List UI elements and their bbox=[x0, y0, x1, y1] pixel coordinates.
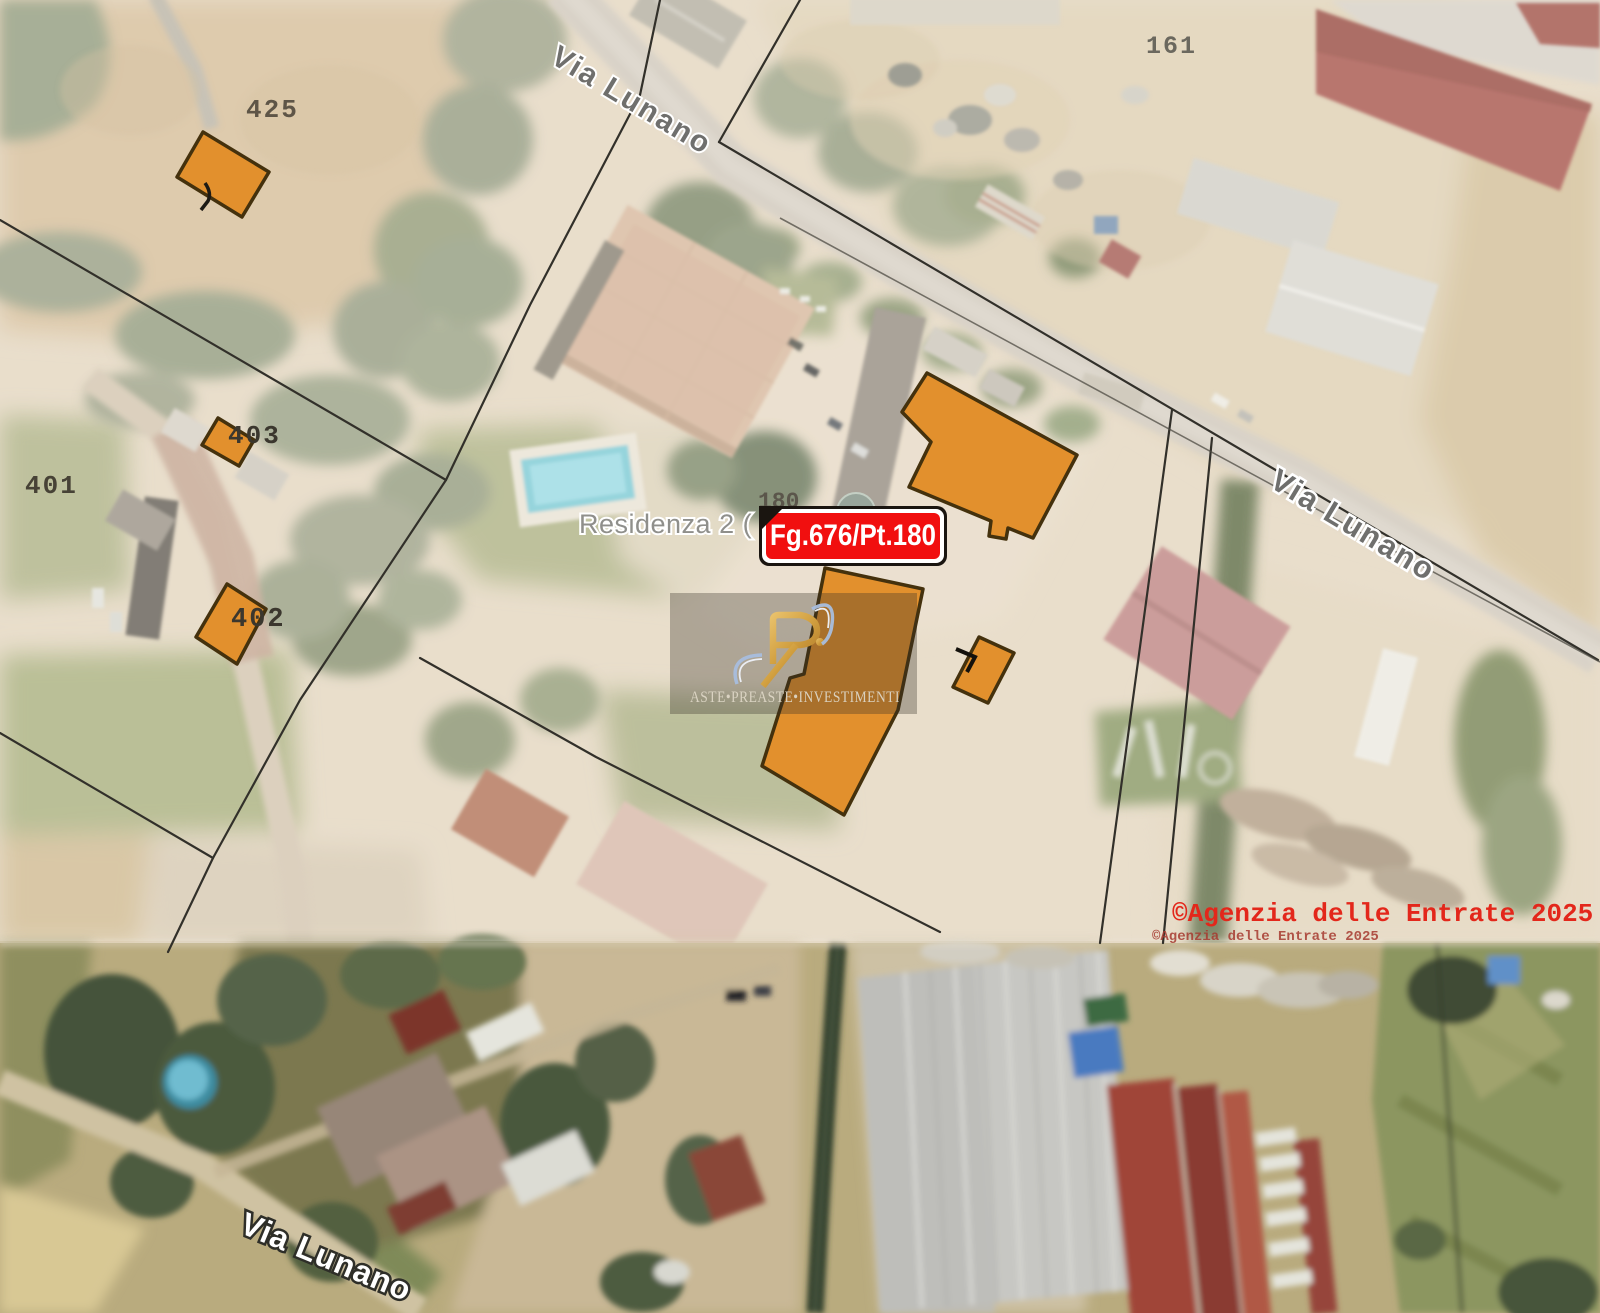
svg-text:©Agenzia delle Entrate 2025: ©Agenzia delle Entrate 2025 bbox=[1172, 899, 1593, 929]
svg-text:ASTE•PREASTE•INVESTIMENTI: ASTE•PREASTE•INVESTIMENTI bbox=[690, 689, 900, 706]
svg-text:403: 403 bbox=[228, 421, 281, 451]
svg-text:Fg.676/Pt.180: Fg.676/Pt.180 bbox=[770, 519, 936, 552]
svg-text:©Agenzia delle Entrate 2025: ©Agenzia delle Entrate 2025 bbox=[1152, 929, 1379, 945]
svg-text:401: 401 bbox=[25, 471, 78, 501]
svg-text:161: 161 bbox=[1146, 32, 1197, 61]
svg-text:425: 425 bbox=[246, 95, 299, 125]
svg-text:402: 402 bbox=[231, 605, 286, 635]
svg-text:Residenza 2 (: Residenza 2 ( bbox=[579, 509, 752, 539]
